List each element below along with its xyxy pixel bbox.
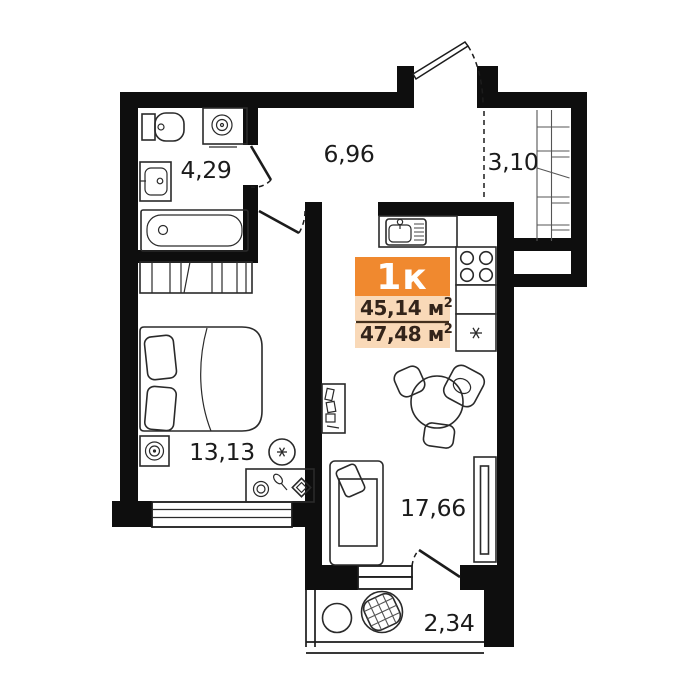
bathroom-area-label: 4,29	[180, 156, 231, 184]
sofa-seat	[339, 479, 377, 546]
wall-top-right	[477, 92, 587, 108]
badge-area-row-2: 47,48 м2	[360, 322, 452, 346]
balcony-door-swing	[412, 550, 419, 566]
wall-bathroom-right-upper	[243, 108, 258, 145]
area-badge: 1к 45,14 м2 47,48 м2	[355, 257, 452, 348]
bed-blanket-fold	[201, 328, 211, 431]
wall-living-bottom	[305, 565, 358, 590]
room-hallway: 6,96	[323, 140, 374, 168]
dining-chair-2-cushion	[451, 376, 473, 397]
wall-balcony-right	[484, 590, 514, 647]
desk-coaster-inner	[297, 483, 307, 493]
room-balcony: 2,34	[323, 591, 475, 637]
toilet-tank	[142, 114, 155, 140]
washing-machine-drum-inner	[217, 120, 228, 131]
hallway-area-label: 6,96	[323, 140, 374, 168]
bathtub-drain	[159, 226, 168, 235]
balcony-door-leaf	[419, 550, 460, 577]
washing-machine-drum-dot	[221, 124, 224, 127]
wall-entry-post-left	[397, 66, 414, 108]
wardrobe-diagonal	[184, 262, 190, 293]
washing-machine-drum-outer	[212, 115, 232, 135]
desk-cup-outer	[254, 482, 269, 497]
toilet-bowl	[155, 113, 184, 141]
bed-pillow-1	[144, 335, 177, 381]
duct-opening	[512, 251, 571, 274]
balcony-door-panel-inner	[358, 577, 412, 589]
bed-pillow-2	[144, 386, 177, 431]
balcony-door-panel-outer	[358, 566, 412, 577]
wall-bathroom-bottom	[120, 250, 258, 263]
wall-bedroom-bottom-left	[112, 501, 152, 527]
book-2	[326, 401, 336, 412]
wall-right-main	[497, 202, 514, 590]
badge-type-label: 1к	[376, 257, 427, 298]
bedroom-door-swing	[299, 211, 305, 233]
floor-plan-page: 4,29 6,96 3,10	[0, 0, 700, 700]
light-asterisk-icon	[277, 448, 287, 457]
wall-left	[120, 92, 138, 501]
floor-plan: 4,29 6,96 3,10	[0, 0, 700, 700]
washing-machine	[203, 108, 247, 144]
bathroom-door-leaf	[251, 146, 271, 180]
nightstand-lamp-dot	[153, 449, 156, 452]
tv-console	[474, 457, 496, 562]
room-bathroom: 4,29	[140, 108, 248, 251]
balcony-table	[323, 604, 352, 633]
badge-area-row-1: 45,14 м2	[360, 296, 452, 320]
wall-kitchen-top	[378, 202, 497, 216]
bedroom-area-label: 13,13	[189, 438, 255, 466]
tv-screen	[481, 466, 489, 554]
book-1	[325, 388, 334, 400]
kitchen-living-area-label: 17,66	[400, 494, 466, 522]
room-bedroom: 13,13	[140, 262, 314, 502]
wall-corner-bottom-right	[460, 565, 514, 590]
bedroom-wardrobe	[140, 262, 252, 293]
book-3	[326, 414, 335, 422]
bath-sink-basin	[145, 168, 167, 195]
desk-cup-inner	[257, 485, 265, 493]
bath-sink-drain	[157, 178, 163, 184]
balcony-area-label: 2,34	[423, 609, 474, 637]
storage-area-label: 3,10	[487, 148, 538, 176]
bathtub-basin	[147, 215, 242, 246]
bedroom-window	[152, 502, 292, 527]
entry-door-leaf	[413, 42, 468, 79]
bedroom-door-leaf	[259, 211, 299, 233]
dining-chair-2	[441, 362, 488, 410]
desk-spoon	[272, 473, 284, 486]
kitchen-counter-2	[456, 285, 496, 314]
toilet-flush	[158, 124, 164, 130]
wall-top-left	[120, 92, 413, 108]
shelf-rail-diagonal	[537, 168, 570, 178]
wall-bedroom-bottom-right	[292, 501, 322, 527]
